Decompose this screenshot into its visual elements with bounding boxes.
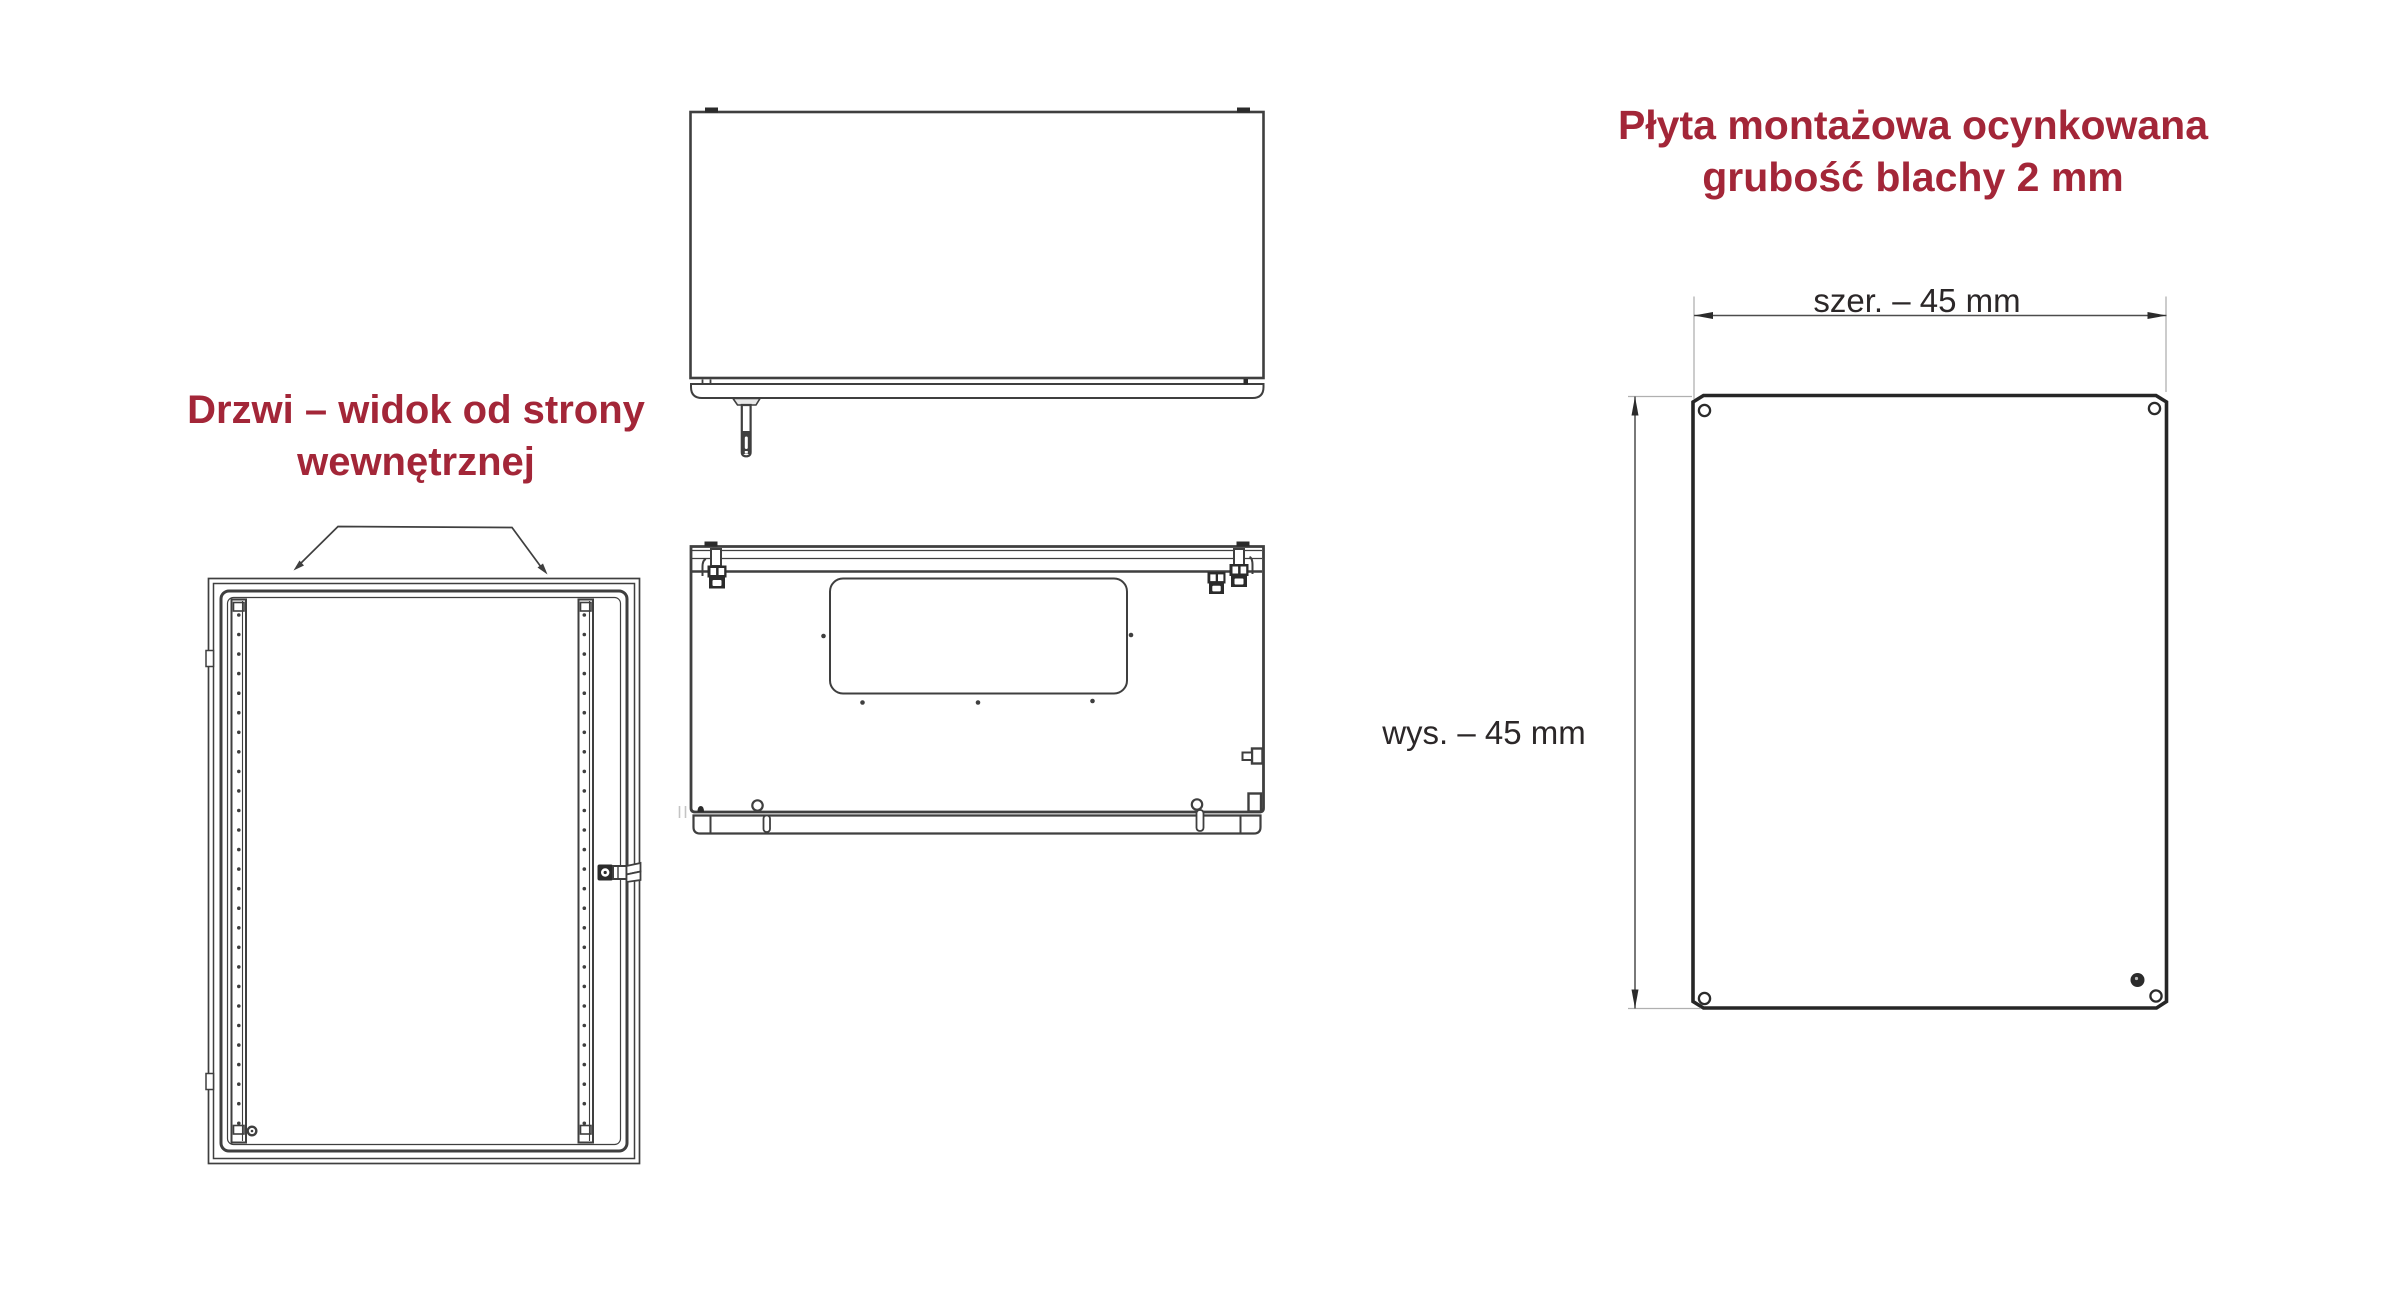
svg-text:Drzwi – widok od strony: Drzwi – widok od strony (187, 388, 646, 432)
svg-text:wewnętrznej: wewnętrznej (296, 440, 535, 484)
svg-text:Płyta montażowa ocynkowana: Płyta montażowa ocynkowana (1618, 102, 2209, 148)
svg-text:wys. – 45 mm: wys. – 45 mm (1381, 714, 1586, 751)
svg-text:grubość blachy 2 mm: grubość blachy 2 mm (1702, 154, 2124, 200)
svg-text:szer. – 45 mm: szer. – 45 mm (1813, 282, 2020, 319)
